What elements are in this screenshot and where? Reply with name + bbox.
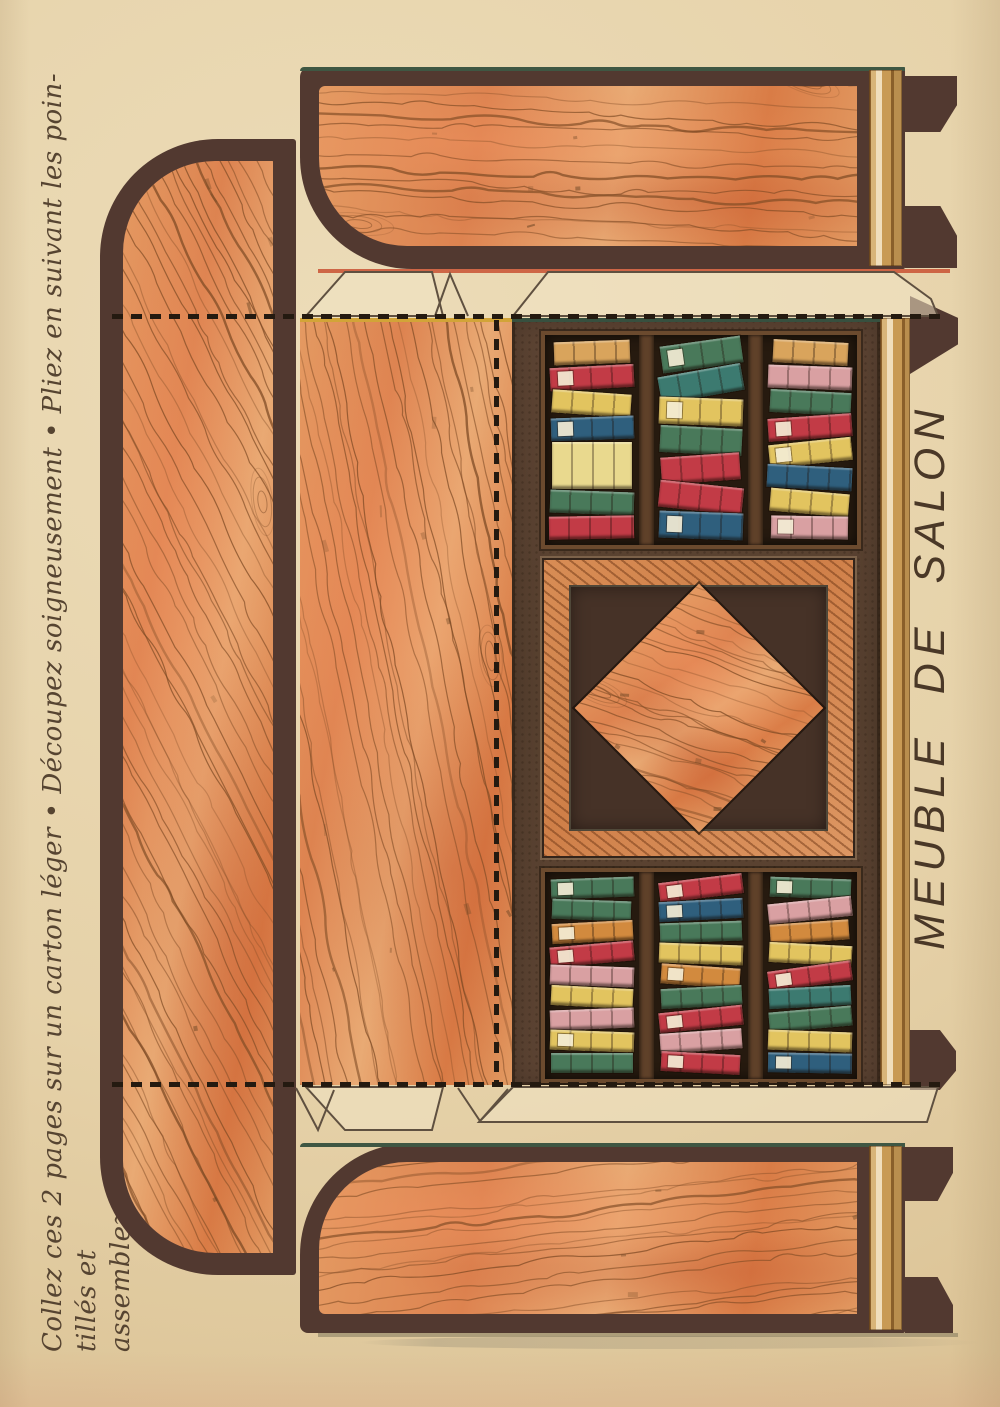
book-spine xyxy=(551,985,634,1009)
top-panel-green-edge xyxy=(300,67,905,71)
wood-grain-texture xyxy=(574,584,823,833)
shelf-compartment xyxy=(654,872,748,1079)
diamond-wood-face xyxy=(574,584,823,833)
glue-tab-front-upper xyxy=(910,296,958,374)
book-spine xyxy=(554,340,630,366)
side-panel-wood-face xyxy=(123,161,273,1253)
cabinet-bottom-panel xyxy=(300,1143,905,1333)
instruction-line-2: tillés et xyxy=(70,42,104,1352)
shelf-compartment xyxy=(654,335,748,545)
book-spine xyxy=(549,964,634,987)
book-spine xyxy=(550,877,633,900)
marquetry-dark-field xyxy=(569,585,828,831)
fold-line-vertical xyxy=(494,320,499,1082)
book-spine xyxy=(551,1053,634,1073)
bottom-panel-green-edge xyxy=(300,1143,905,1147)
shelf-divider xyxy=(748,872,763,1079)
book-spine xyxy=(771,515,849,539)
book-spine xyxy=(661,963,741,988)
bookshelf-upper xyxy=(541,331,861,549)
bottom-panel-gold-trim xyxy=(869,1146,902,1330)
book-spine xyxy=(767,1030,852,1053)
book-spine xyxy=(769,389,851,416)
book-spine xyxy=(549,515,635,540)
book-spine xyxy=(550,1008,634,1031)
book-spine xyxy=(661,453,742,485)
book-spine xyxy=(658,397,743,427)
bottom-panel-wood-face xyxy=(319,1162,857,1314)
shelf-divider xyxy=(639,335,654,545)
book-spine xyxy=(660,920,742,943)
glue-tab-top-panel-upper xyxy=(905,76,957,132)
book-spine xyxy=(549,1030,634,1053)
glue-tab-bottom-panel-lower xyxy=(905,1277,953,1333)
top-panel-red-shadow-line xyxy=(318,269,950,273)
glue-tab-front-lower xyxy=(910,1030,956,1090)
cabinet-top-panel xyxy=(300,67,905,269)
book-spine xyxy=(552,442,633,489)
book-spine xyxy=(767,464,853,491)
book-spine xyxy=(550,489,634,515)
wood-grain-texture xyxy=(123,161,273,1253)
wood-diamond-inlay xyxy=(574,584,823,833)
book-spine xyxy=(768,1006,852,1033)
book-spine xyxy=(552,899,632,922)
title-meuble-de-salon: MEUBLE DE SALON xyxy=(906,480,955,950)
glue-tab-bottom-panel-upper xyxy=(905,1147,953,1201)
book-spine xyxy=(659,1028,742,1054)
shelf-compartment xyxy=(763,335,857,545)
book-spine xyxy=(768,1052,852,1073)
shelf-compartment xyxy=(763,872,857,1079)
marquetry-center-panel xyxy=(542,558,855,858)
book-spine xyxy=(549,364,635,392)
book-spine xyxy=(772,339,848,366)
top-panel-gold-trim xyxy=(869,70,902,266)
shelf-divider xyxy=(639,872,654,1079)
shelf-divider xyxy=(748,335,763,545)
book-spine xyxy=(768,365,852,391)
book-spine xyxy=(552,389,633,418)
fold-line-bottom xyxy=(112,1082,940,1087)
top-panel-wood-face xyxy=(319,86,857,246)
book-spine xyxy=(658,942,743,965)
book-spine xyxy=(659,425,742,456)
cabinet-side-panel xyxy=(100,139,296,1275)
wood-grain-texture xyxy=(300,318,512,1085)
book-spine xyxy=(659,898,744,922)
glue-tab-top-panel-lower xyxy=(905,206,957,268)
book-spine xyxy=(770,488,851,518)
front-panel-gold-trim xyxy=(880,318,910,1085)
paper-sheet: Collez ces 2 pages sur un carton léger •… xyxy=(0,0,1000,1407)
book-spine xyxy=(551,920,633,944)
wood-grain-texture xyxy=(319,86,857,246)
book-spine xyxy=(658,511,743,541)
bookshelf-lower xyxy=(541,868,861,1083)
cabinet-front-panel xyxy=(512,318,880,1085)
fold-line-top xyxy=(112,314,940,319)
book-spine xyxy=(550,415,633,441)
wood-grain-texture xyxy=(319,1162,857,1314)
book-spine xyxy=(658,480,744,515)
scan-smudge xyxy=(360,1336,980,1349)
front-side-wall-wood xyxy=(300,318,512,1085)
book-spine xyxy=(549,940,634,967)
instruction-line-1: Collez ces 2 pages sur un carton léger •… xyxy=(36,42,70,1352)
shelf-compartment xyxy=(545,335,639,545)
shelf-compartment xyxy=(545,872,639,1079)
book-spine xyxy=(661,1051,741,1075)
